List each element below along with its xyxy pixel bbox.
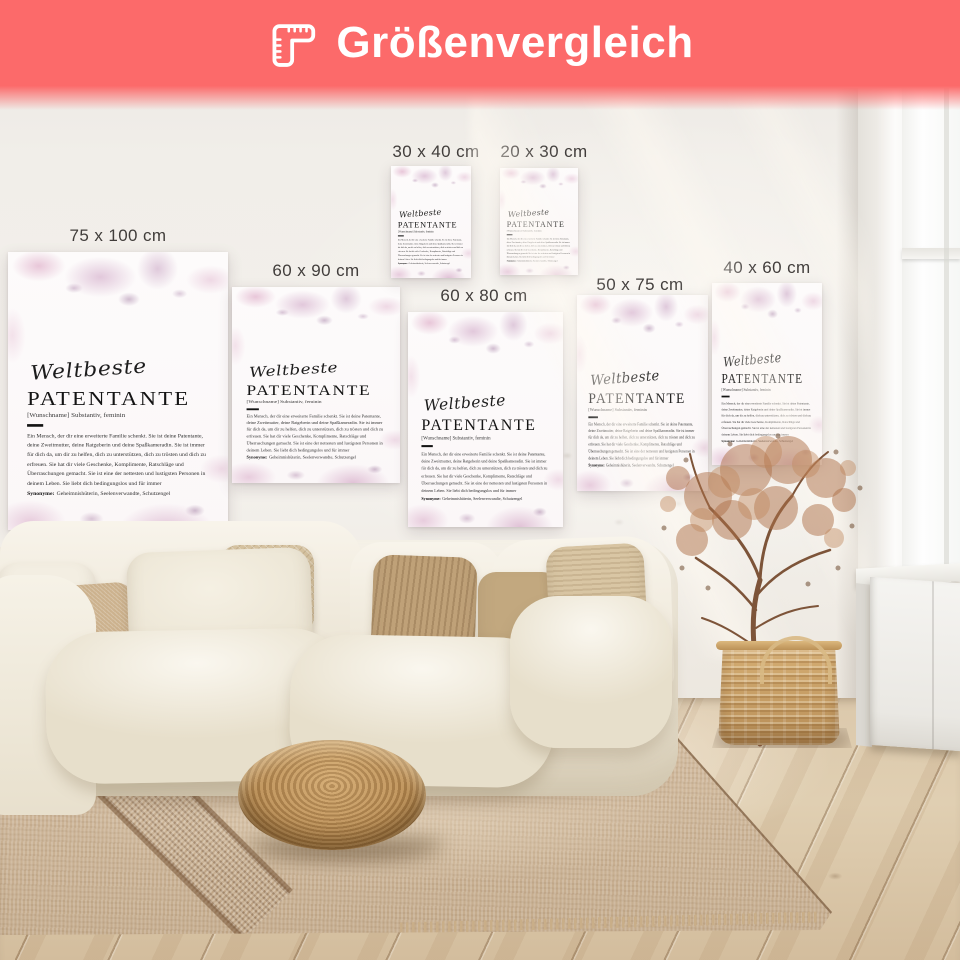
size-label-20x30: 20 x 30 cm	[500, 142, 587, 162]
poster-meta: [Wunschname] Substantiv, feminin	[722, 388, 814, 392]
poster-synonyms-list: Geheimnishüterin, Seelenverwandte, Schut…	[57, 490, 171, 496]
size-label-40x60: 40 x 60 cm	[723, 258, 810, 278]
poster-script-word: Weltbeste	[30, 351, 212, 385]
poster-rule	[722, 396, 730, 398]
poster-title: PATENTANTE	[247, 382, 388, 399]
poster-rule	[247, 408, 259, 410]
poster-synonyms-label: Synonyme:	[507, 260, 517, 262]
poster-30x40: Weltbeste PATENTANTE [Wunschname] Substa…	[391, 166, 471, 278]
poster-synonyms-label: Synonyme:	[247, 455, 268, 459]
poster-synonyms: Synonyme:Geheimnishüterin, Seelenverwand…	[398, 262, 465, 264]
poster-synonyms-list: Geheimnishüterin, Seelenverwandte, Schut…	[409, 262, 450, 264]
window-mullion	[944, 88, 949, 574]
poster-synonyms: Synonyme:Geheimnishüterin, Seelenverwand…	[507, 260, 573, 262]
poster-script-word: Weltbeste	[249, 357, 388, 381]
poster-synonyms-label: Synonyme:	[588, 463, 604, 467]
size-comparison-mockup: Weltbeste PATENTANTE [Wunschname] Substa…	[0, 0, 960, 960]
poster-definition: Ein Mensch, der dir eine erweiterte Fami…	[27, 431, 212, 488]
poster-synonyms-list: Geheimnishüterin, Seelenverwandte, Schut…	[442, 496, 522, 501]
size-label-75x100: 75 x 100 cm	[69, 226, 166, 246]
poster-synonyms-list: Geheimnishüterin, Seelenverwandte, Schut…	[517, 260, 557, 262]
poster-rule	[421, 445, 432, 447]
poster-meta: [Wunschname] Substantiv, feminin	[507, 230, 573, 233]
poster-rule	[507, 234, 513, 235]
size-label-30x40: 30 x 40 cm	[392, 142, 479, 162]
poster-script-word: Weltbeste	[723, 348, 814, 371]
poster-meta: [Wunschname] Substantiv, feminin	[27, 412, 212, 419]
header-banner: Größenvergleich	[0, 0, 960, 110]
corner-ruler-icon	[266, 16, 320, 70]
poster-60x80: Weltbeste PATENTANTE [Wunschname] Substa…	[408, 312, 563, 527]
poster-75x100: Weltbeste PATENTANTE [Wunschname] Substa…	[8, 252, 228, 530]
size-label-60x80: 60 x 80 cm	[440, 286, 527, 306]
size-label-50x75: 50 x 75 cm	[596, 275, 683, 295]
poster-definition: Ein Mensch, der dir eine erweiterte Fami…	[421, 450, 551, 494]
poster-script-word: Weltbeste	[423, 388, 551, 415]
poster-rule	[588, 416, 598, 418]
poster-definition: Ein Mensch, der dir eine erweiterte Fami…	[398, 238, 465, 261]
poster-synonyms: Synonyme:Geheimnishüterin, Seelenverwand…	[27, 490, 212, 496]
poster-script-word: Weltbeste	[508, 206, 572, 219]
poster-title: PATENTANTE	[27, 386, 212, 410]
poster-title: PATENTANTE	[398, 220, 465, 230]
poster-60x90: Weltbeste PATENTANTE [Wunschname] Substa…	[232, 287, 400, 483]
poster-meta: [Wunschname] Substantiv, feminin	[421, 436, 551, 441]
poster-rule	[27, 424, 43, 426]
header-content: Größenvergleich	[0, 12, 960, 74]
size-label-60x90: 60 x 90 cm	[272, 261, 359, 281]
window	[902, 88, 960, 574]
poster-title: PATENTANTE	[588, 390, 698, 407]
rug-fringe	[400, 912, 820, 934]
poster-rule	[398, 235, 404, 236]
poster-definition: Ein Mensch, der dir eine erweiterte Fami…	[507, 237, 573, 259]
window-mullion	[902, 248, 960, 259]
sofa-seat-cushion	[510, 596, 672, 748]
poster-synonyms: Synonyme:Geheimnishüterin, Seelenverwand…	[421, 496, 551, 501]
poster-synonyms-label: Synonyme:	[398, 262, 408, 264]
poster-synonyms: Synonyme:Geheimnishüterin, Seelenverwand…	[247, 455, 388, 459]
cabinet-seam	[932, 581, 934, 749]
poster-synonyms-label: Synonyme:	[421, 496, 440, 501]
poster-title: PATENTANTE	[507, 220, 573, 229]
poster-title: PATENTANTE	[421, 416, 551, 434]
poster-meta: [Wunschname] Substantiv, feminin	[247, 400, 388, 405]
poster-definition: Ein Mensch, der dir eine erweiterte Fami…	[247, 413, 388, 453]
poster-20x30: Weltbeste PATENTANTE [Wunschname] Substa…	[500, 168, 578, 275]
rattan-pouf	[238, 740, 426, 850]
poster-title: PATENTANTE	[722, 371, 814, 387]
header-title: Größenvergleich	[336, 18, 693, 68]
poster-script-word: Weltbeste	[399, 206, 465, 220]
poster-script-word: Weltbeste	[590, 365, 698, 389]
poster-synonyms-list: Geheimnishüterin, Seelenverwandte, Schut…	[269, 455, 356, 459]
poster-meta: [Wunschname] Substantiv, feminin	[398, 231, 465, 234]
poster-synonyms-label: Synonyme:	[27, 490, 54, 496]
